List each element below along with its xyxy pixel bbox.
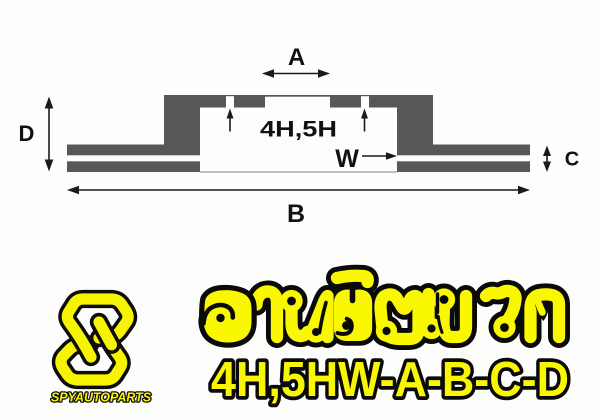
svg-text:4H,5HW-A-B-C-D: 4H,5HW-A-B-C-D — [211, 352, 569, 407]
svg-text:W: W — [335, 145, 359, 173]
svg-text:D: D — [19, 121, 35, 146]
svg-text:SPYAUTOPARTS: SPYAUTOPARTS — [51, 391, 152, 405]
svg-text:C: C — [565, 149, 579, 171]
svg-text:B: B — [287, 200, 305, 228]
svg-text:4H,5H: 4H,5H — [260, 117, 337, 142]
svg-text:A: A — [288, 44, 305, 71]
